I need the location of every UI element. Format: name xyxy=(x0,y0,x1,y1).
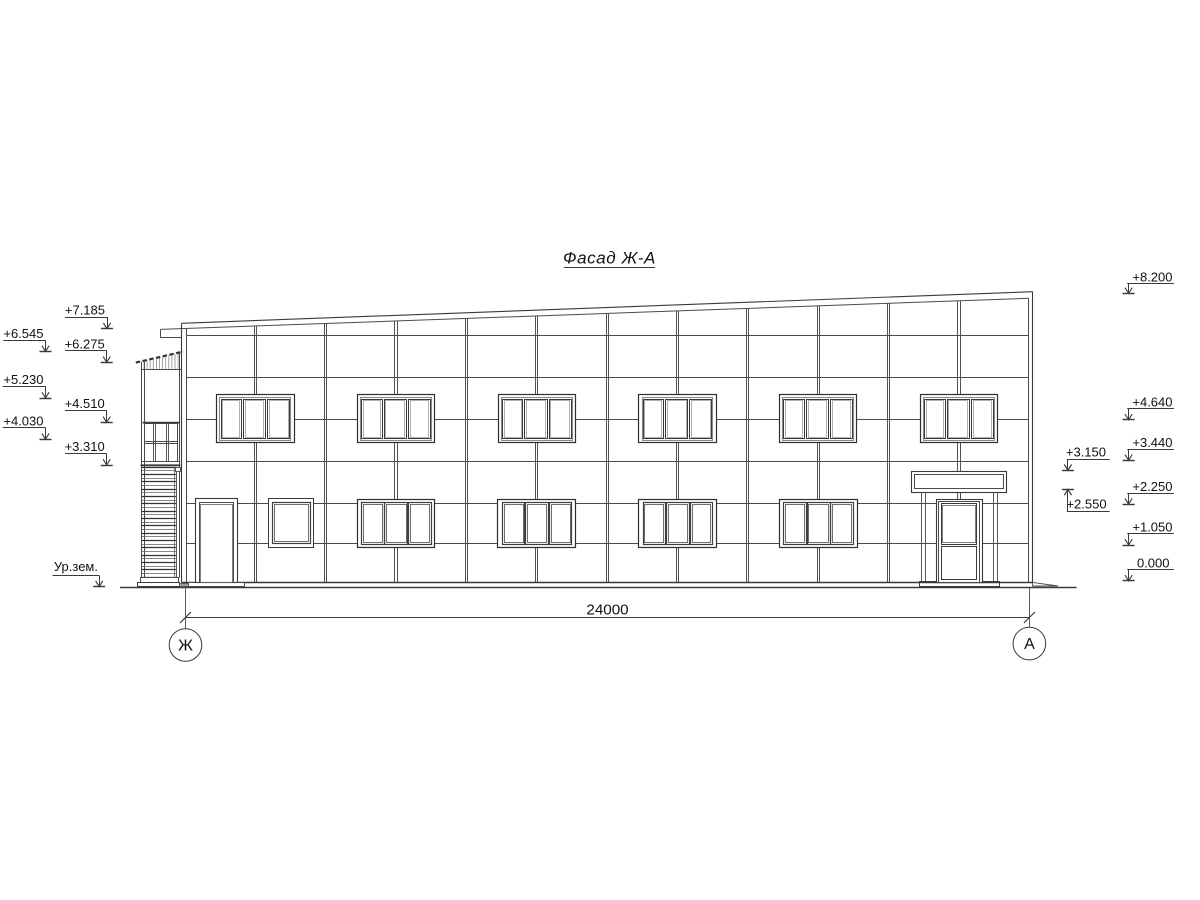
svg-text:+6.545: +6.545 xyxy=(3,326,43,341)
svg-text:+4.030: +4.030 xyxy=(3,414,43,429)
svg-text:Ур.зем.: Ур.зем. xyxy=(54,559,98,574)
svg-text:+1.050: +1.050 xyxy=(1132,520,1172,535)
svg-text:Фасад Ж-А: Фасад Ж-А xyxy=(563,249,656,268)
svg-text:+3.440: +3.440 xyxy=(1132,435,1172,450)
svg-text:Ж: Ж xyxy=(178,638,193,655)
svg-text:+4.510: +4.510 xyxy=(65,396,105,411)
svg-text:+5.230: +5.230 xyxy=(3,372,43,387)
svg-text:+2.550: +2.550 xyxy=(1066,496,1106,511)
svg-text:+2.250: +2.250 xyxy=(1132,479,1172,494)
svg-text:+4.640: +4.640 xyxy=(1132,394,1172,409)
svg-text:0.000: 0.000 xyxy=(1137,556,1170,571)
svg-text:+7.185: +7.185 xyxy=(65,303,105,318)
svg-text:+3.310: +3.310 xyxy=(65,439,105,454)
svg-text:+3.150: +3.150 xyxy=(1066,445,1106,460)
svg-text:24000: 24000 xyxy=(586,602,628,619)
svg-text:А: А xyxy=(1024,636,1035,653)
svg-text:+8.200: +8.200 xyxy=(1132,270,1172,285)
svg-text:+6.275: +6.275 xyxy=(65,336,105,351)
